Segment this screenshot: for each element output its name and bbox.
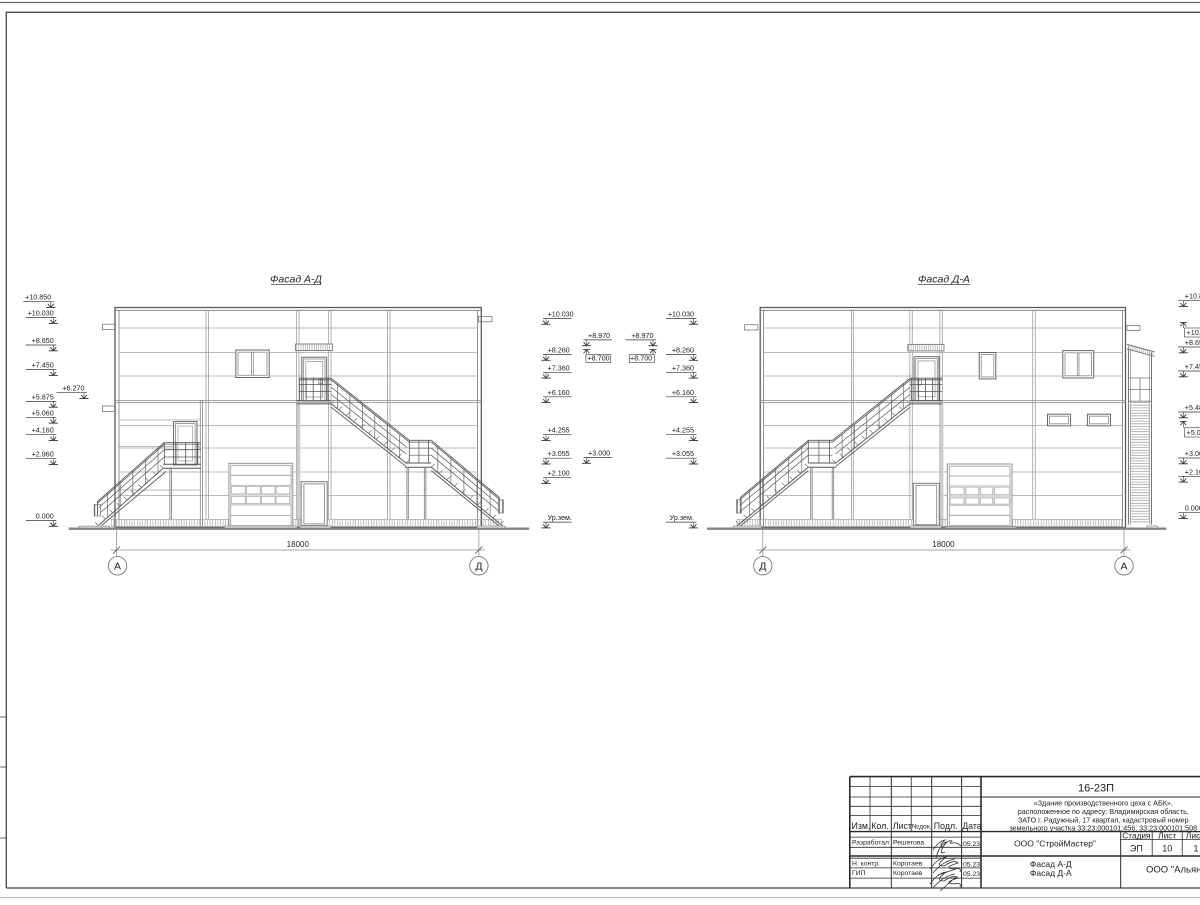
svg-text:Лис: Лис: [1186, 831, 1200, 841]
svg-text:Лист: Лист: [1158, 831, 1176, 841]
svg-text:+6.160: +6.160: [548, 388, 570, 397]
svg-text:+6.270: +6.270: [62, 384, 84, 393]
svg-text:+8.700: +8.700: [587, 354, 609, 363]
svg-text:Ур.зем.: Ур.зем.: [670, 513, 694, 522]
svg-text:ЭП: ЭП: [1130, 844, 1143, 854]
svg-text:16-23П: 16-23П: [1078, 783, 1114, 795]
svg-text:Д: Д: [759, 561, 766, 573]
svg-text:Подл.: Подл.: [934, 821, 958, 831]
svg-text:+8.970: +8.970: [588, 331, 610, 340]
svg-text:Коротаев: Коротаев: [893, 860, 923, 867]
svg-text:+10.030: +10.030: [28, 309, 54, 318]
svg-text:Дата: Дата: [962, 821, 982, 831]
svg-text:+8.650: +8.650: [1185, 338, 1200, 347]
svg-text:ГИП: ГИП: [852, 870, 866, 877]
svg-text:+4.255: +4.255: [548, 426, 570, 435]
svg-text:+8.970: +8.970: [631, 331, 653, 340]
svg-text:Д: Д: [475, 561, 482, 573]
svg-text:А: А: [1120, 561, 1127, 573]
svg-text:№док.: №док.: [912, 824, 932, 831]
svg-text:+3.000: +3.000: [1185, 449, 1200, 458]
svg-text:+3.000: +3.000: [588, 449, 610, 458]
svg-text:Разработал: Разработал: [852, 839, 889, 847]
svg-text:Ур.зем.: Ур.зем.: [548, 513, 572, 522]
svg-text:18000: 18000: [932, 540, 955, 549]
svg-text:+10.850: +10.850: [25, 293, 51, 302]
svg-text:А: А: [114, 561, 121, 573]
svg-text:+5.080: +5.080: [1187, 428, 1200, 437]
svg-text:Изм.: Изм.: [852, 821, 871, 831]
svg-text:+4.160: +4.160: [32, 426, 54, 435]
svg-text:Н. контр.: Н. контр.: [852, 860, 880, 867]
svg-text:+3.055: +3.055: [672, 449, 694, 458]
svg-text:Стадия: Стадия: [1122, 831, 1150, 841]
svg-text:05.23: 05.23: [963, 871, 980, 878]
svg-text:+5.480: +5.480: [1185, 403, 1200, 412]
svg-text:+8.260: +8.260: [548, 346, 570, 355]
svg-text:+6.160: +6.160: [672, 388, 694, 397]
svg-text:+7.360: +7.360: [672, 363, 694, 372]
svg-text:Кол.: Кол.: [871, 821, 888, 831]
svg-text:1: 1: [1193, 844, 1198, 854]
svg-text:Лист: Лист: [893, 821, 912, 831]
svg-text:0.000: 0.000: [1185, 504, 1200, 513]
svg-text:18000: 18000: [287, 540, 310, 549]
svg-text:+3.055: +3.055: [548, 449, 570, 458]
svg-text:+10.030: +10.030: [1187, 328, 1200, 337]
svg-text:+2.100: +2.100: [1185, 467, 1200, 476]
svg-text:10: 10: [1162, 844, 1172, 854]
svg-text:+10.850: +10.850: [1185, 292, 1200, 301]
svg-text:+8.260: +8.260: [672, 346, 694, 355]
svg-text:+7.450: +7.450: [32, 361, 54, 370]
svg-text:ООО "Альянс": ООО "Альянс": [1146, 865, 1200, 876]
svg-text:+5.875: +5.875: [32, 392, 54, 401]
svg-text:Решетова: Решетова: [893, 840, 924, 847]
svg-text:+10.030: +10.030: [548, 310, 574, 319]
svg-text:Фасад Д-А: Фасад Д-А: [1030, 868, 1072, 878]
svg-text:Коротаев: Коротаев: [893, 870, 923, 877]
svg-text:05.23: 05.23: [963, 861, 980, 868]
svg-text:+10.030: +10.030: [668, 310, 694, 319]
svg-text:0.000: 0.000: [36, 512, 54, 521]
svg-text:+2.100: +2.100: [548, 469, 570, 478]
svg-text:Фасад Д-А: Фасад Д-А: [918, 274, 970, 286]
svg-text:+7.450: +7.450: [1185, 362, 1200, 371]
svg-text:+7.360: +7.360: [548, 363, 570, 372]
svg-text:Фасад А-Д: Фасад А-Д: [270, 274, 322, 286]
svg-text:+8.650: +8.650: [32, 336, 54, 345]
svg-text:+4.255: +4.255: [672, 426, 694, 435]
svg-text:05.23: 05.23: [963, 841, 980, 848]
svg-text:ООО "СтройМастер": ООО "СтройМастер": [1014, 839, 1096, 849]
svg-text:+2.960: +2.960: [32, 450, 54, 459]
svg-text:+5.060: +5.060: [32, 408, 54, 417]
svg-text:+8.700: +8.700: [630, 354, 652, 363]
